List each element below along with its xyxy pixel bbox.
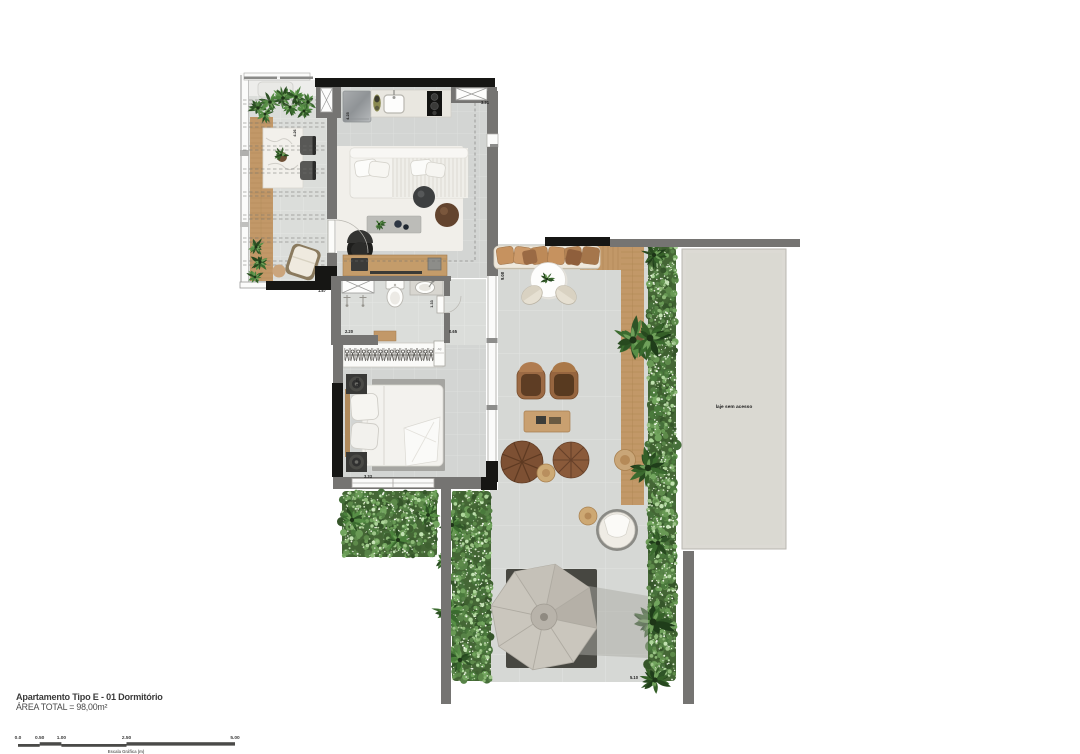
svg-text:0.65: 0.65 (449, 329, 458, 334)
svg-text:1.00: 1.00 (57, 735, 67, 741)
svg-text:ÁREA TOTAL = 98,00m²: ÁREA TOTAL = 98,00m² (16, 702, 108, 712)
svg-text:9.08: 9.08 (500, 271, 505, 280)
svg-text:0.0: 0.0 (15, 735, 22, 741)
svg-text:1.33: 1.33 (430, 300, 434, 307)
svg-text:AQ: AQ (438, 347, 442, 351)
svg-text:3.33: 3.33 (364, 474, 373, 479)
svg-text:2.50: 2.50 (122, 735, 132, 741)
svg-text:5.00: 5.00 (230, 735, 240, 741)
svg-text:4.25: 4.25 (346, 112, 350, 119)
svg-text:Apartamento Tipo E - 01 Dormit: Apartamento Tipo E - 01 Dormitório (16, 692, 163, 702)
svg-text:5.10: 5.10 (630, 675, 639, 680)
svg-text:Escala Gráfica (m): Escala Gráfica (m) (108, 749, 145, 754)
svg-text:2.20: 2.20 (345, 329, 354, 334)
svg-text:0.50: 0.50 (35, 735, 45, 741)
svg-text:4.26: 4.26 (293, 129, 297, 136)
svg-text:3.20: 3.20 (355, 377, 360, 386)
svg-text:laje sem acesso: laje sem acesso (716, 404, 753, 410)
svg-text:3.31: 3.31 (481, 100, 490, 105)
